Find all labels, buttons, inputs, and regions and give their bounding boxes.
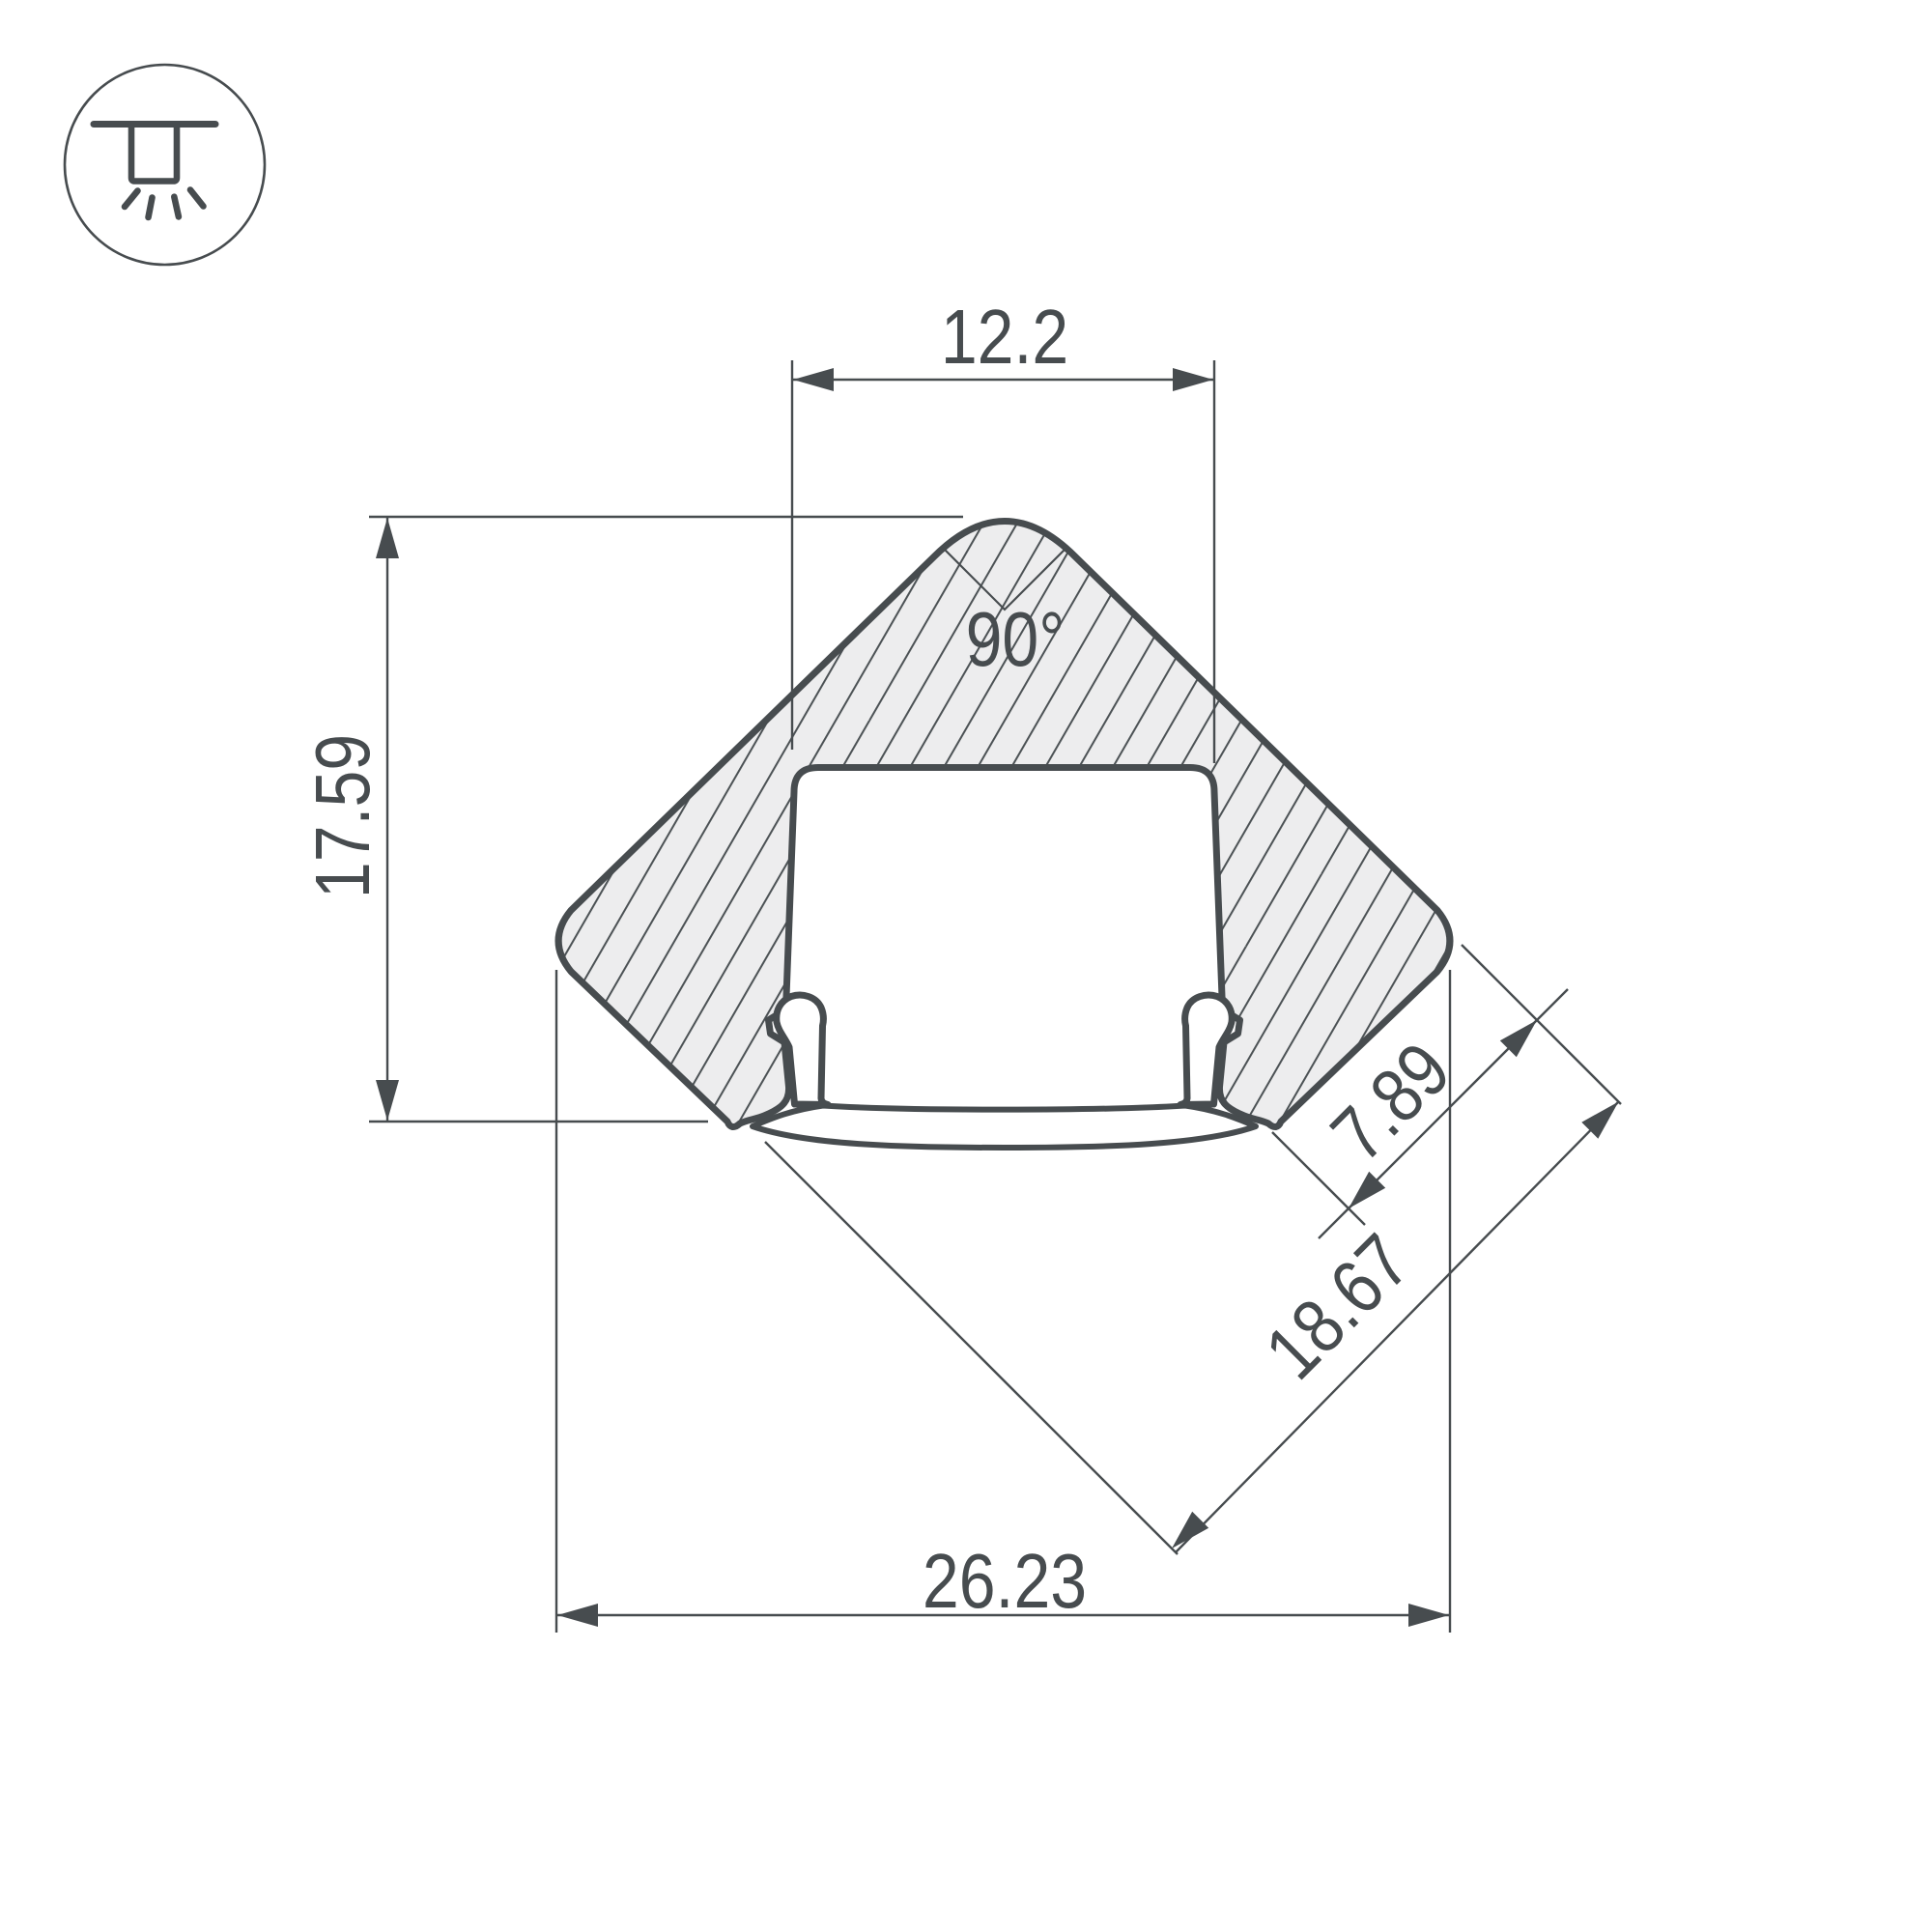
svg-text:90°: 90° [966, 596, 1065, 682]
svg-text:26.23: 26.23 [923, 1538, 1087, 1624]
svg-text:17.59: 17.59 [299, 734, 385, 898]
svg-text:12.2: 12.2 [941, 294, 1068, 380]
